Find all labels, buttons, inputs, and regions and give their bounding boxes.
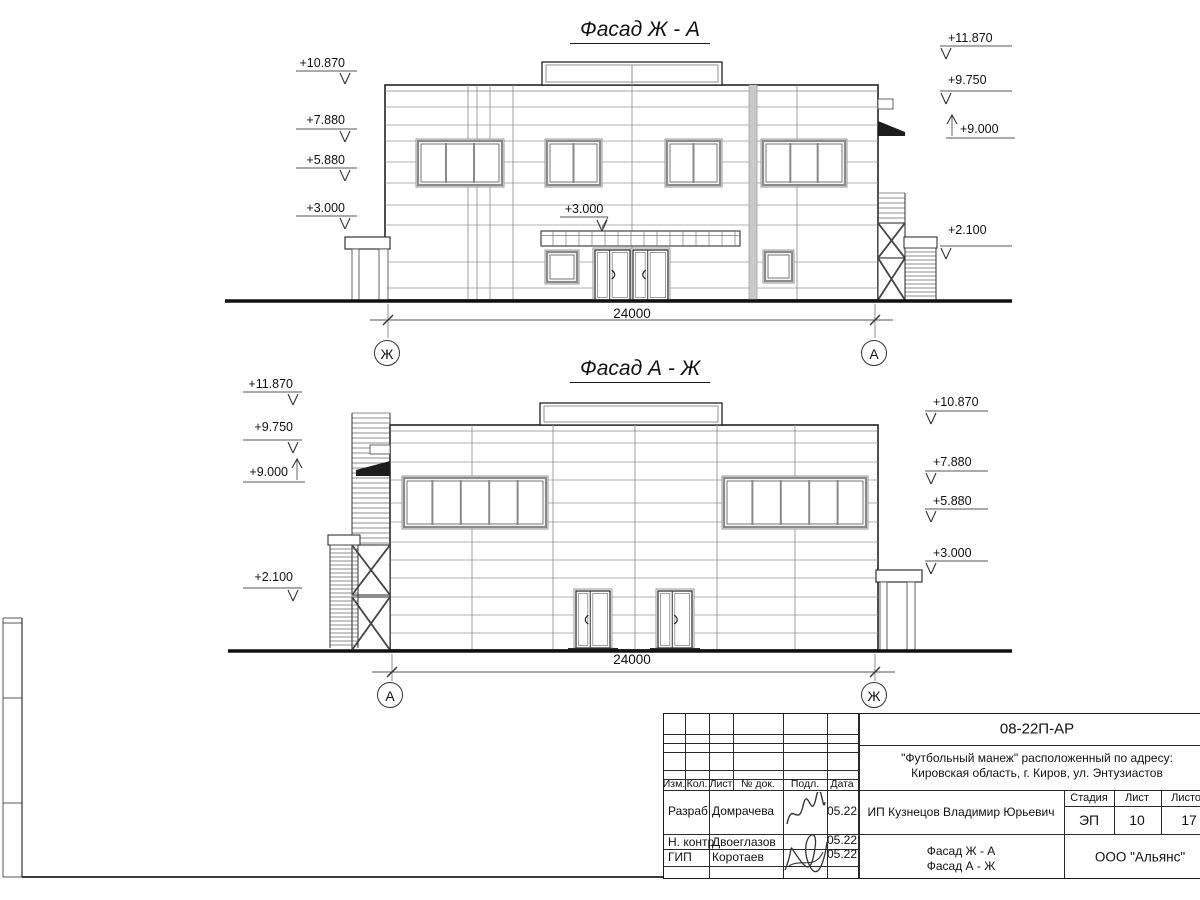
signoff-date: 05.22 [827,833,857,847]
elevation-mark: +9.000 [218,463,288,481]
facade-bottom-title-text: Фасад А - Ж [570,357,710,383]
titleblock-sheets-label: Листов [1171,792,1200,804]
elevation-mark: +11.870 [223,375,293,393]
elevation-mark: +5.880 [275,151,345,169]
dimension-bottom: 24000 [572,652,692,667]
titleblock-col-list: Лист [710,778,733,790]
signoff-date: 05.22 [827,847,857,861]
titleblock-sheet-value: 10 [1129,812,1145,828]
titleblock-company: ООО "Альянс" [1095,850,1185,865]
signature-glyph [781,830,829,876]
titleblock-doc-code: 08-22П-АР [1000,721,1074,738]
titleblock-project-line1: "Футбольный манеж" расположенный по адре… [901,751,1173,765]
titleblock-sheet-label: Лист [1125,792,1149,804]
axis-bubble-bottom-left: А [377,682,403,708]
elevation-mark: +7.880 [933,453,1003,471]
elevation-mark: +3.000 [933,544,1003,562]
elevation-mark: +3.000 [544,200,624,218]
facade-bottom-title: Фасад А - Ж [440,357,840,381]
titleblock-col-izm: Изм. [663,778,686,790]
titleblock-stage-value: ЭП [1079,812,1099,828]
elevation-mark: +9.750 [948,71,1018,89]
elevation-mark: +11.870 [948,29,1018,47]
titleblock-sheets-value: 17 [1181,812,1197,828]
dimension-top: 24000 [572,306,692,321]
elevation-mark: +10.870 [933,393,1003,411]
elevation-mark: +2.100 [948,221,1018,239]
titleblock-client: ИП Кузнецов Владимир Юрьевич [868,805,1055,819]
elevation-mark: +5.880 [933,492,1003,510]
titleblock-sheetname-line1: Фасад Ж - А [927,844,996,858]
titleblock-project-line2: Кировская область, г. Киров, ул. Энтузиа… [911,766,1163,780]
elevation-mark: +7.880 [275,111,345,129]
drawing-sheet: Фасад Ж - А Фасад А - Ж +10.870 +7.880 +… [0,0,1200,900]
signoff-name: Двоеглазов [712,835,776,849]
signoff-role: Разраб. [668,804,711,818]
elevation-mark: +9.750 [223,418,293,436]
facade-top-title-text: Фасад Ж - А [570,18,710,44]
elevation-mark: +10.870 [275,54,345,72]
elevation-mark: +3.000 [275,199,345,217]
titleblock-col-podp: Подл. [791,778,819,790]
titleblock-col-kol: Кол. [687,778,708,790]
signoff-role: Н. контр. [668,835,718,849]
axis-bubble-top-right: А [861,340,887,366]
title-block: Изм. Кол. Лист № док. Подл. Дата Разраб.… [663,713,1200,879]
axis-bubble-bottom-right: Ж [861,682,887,708]
titleblock-sheetname-line2: Фасад А - Ж [927,859,996,873]
signoff-name: Коротаев [712,850,764,864]
titleblock-col-data: Дата [830,778,853,790]
signoff-name: Домрачева [712,804,774,818]
titleblock-stage-label: Стадия [1070,792,1108,804]
elevation-mark: +9.000 [960,120,1030,138]
signoff-date: 05.22 [827,804,857,818]
axis-bubble-top-left: Ж [374,340,400,366]
facade-top-title: Фасад Ж - А [440,18,840,42]
signoff-role: ГИП [668,850,692,864]
titleblock-col-dok: № док. [741,778,775,790]
elevation-mark: +2.100 [223,568,293,586]
signature-glyph [784,792,826,832]
